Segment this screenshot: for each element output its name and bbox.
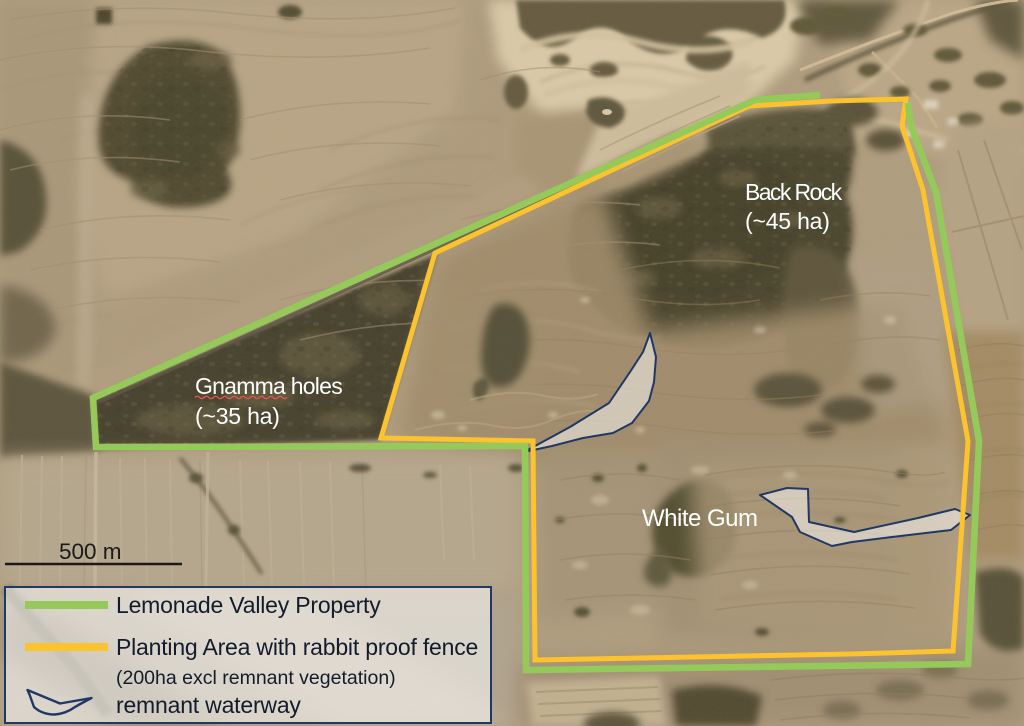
svg-text:(~35 ha): (~35 ha) xyxy=(195,403,280,429)
svg-text:Planting Area with rabbit proo: Planting Area with rabbit proof fence xyxy=(116,634,478,660)
svg-text:remnant waterway: remnant waterway xyxy=(116,692,301,718)
svg-text:(~45 ha): (~45 ha) xyxy=(745,208,830,234)
svg-text:Lemonade Valley Property: Lemonade Valley Property xyxy=(116,592,381,618)
svg-text:Gnamma holes: Gnamma holes xyxy=(195,373,342,399)
svg-text:White Gum: White Gum xyxy=(642,505,758,532)
svg-text:(200ha excl remnant vegetation: (200ha excl remnant vegetation) xyxy=(116,667,396,689)
svg-text:Back Rock: Back Rock xyxy=(745,179,843,205)
svg-text:500 m: 500 m xyxy=(59,539,122,564)
